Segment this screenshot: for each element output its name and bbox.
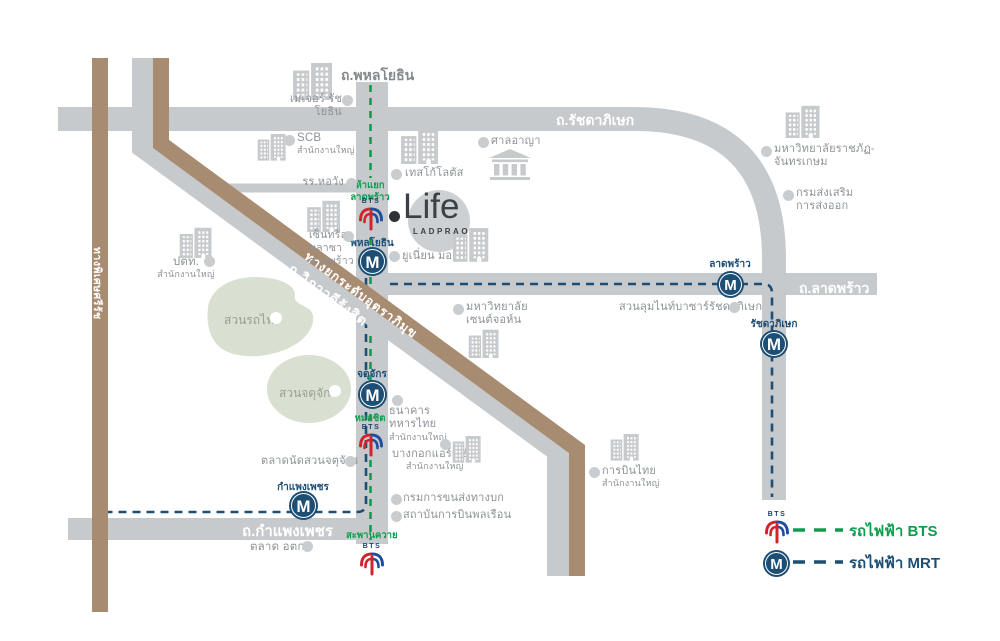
poi-scb-hq: SCB สำนักงานใหญ่: [297, 131, 355, 156]
poi-line2: สำนักงานใหญ่: [155, 269, 217, 280]
building-icon: [452, 431, 482, 467]
poi-tesco-lotus: เทสโก้โลตัส: [405, 167, 464, 180]
mrt-logo-ring: [719, 273, 742, 296]
poi-line2: ทหารไทย: [389, 418, 447, 431]
legend-bts-dash: [793, 526, 843, 534]
bts-logo-hayaek-ladprao: BTS: [356, 198, 386, 236]
poi-dot: [343, 231, 354, 242]
legend-mrt-label: รถไฟฟ้า MRT: [849, 551, 940, 575]
mrt-logo-chatuchak: M: [358, 380, 387, 409]
poi-line1: กรมส่งเสริม: [796, 187, 853, 200]
road-label-latphrao: ถ.ลาดพร้าว: [799, 278, 869, 300]
park-rotfai-dot: [270, 312, 282, 324]
poi-dot: [783, 190, 794, 201]
location-map: ถ.พหลโยธิน ถ.รัชดาภิเษก ถ.ลาดพร้าว ถ.กำแ…: [0, 0, 1000, 641]
poi-thai-airways-hq: การบินไทย สำนักงานใหญ่: [602, 465, 660, 489]
poi-otk-market: ตลาด อตก.: [250, 540, 308, 554]
bts-logo-wordmark: BTS: [356, 424, 386, 431]
poi-line1: SCB: [297, 131, 355, 145]
building-icon: [465, 329, 503, 358]
building-icon: [302, 200, 346, 232]
legend-bts-logo: BTS: [762, 511, 792, 549]
bts-logo-wordmark: BTS: [762, 511, 792, 518]
mrt-station-label-latphrao: ลาดพร้าว: [702, 257, 758, 272]
mrt-logo-ring: [765, 552, 788, 575]
poi-line1: การบินไทย: [602, 465, 660, 478]
poi-line2: จันทรเกษม: [774, 156, 875, 169]
poi-line2: สำนักงานใหญ่: [602, 478, 660, 489]
poi-line1: ธนาคาร: [389, 405, 447, 418]
mrt-logo-phahonyothin: M: [358, 247, 387, 276]
poi-line3: สำนักงานใหญ่: [389, 432, 447, 443]
building-icon: [610, 429, 640, 465]
mrt-logo-latphrao: M: [717, 271, 744, 298]
mrt-logo-ring: [360, 249, 385, 274]
poi-dot: [342, 95, 353, 106]
legend-mrt-dash: [793, 558, 843, 566]
bts-logo-mochit: BTS: [356, 424, 386, 462]
building-icon: [175, 227, 217, 258]
mrt-logo-kamphaengphet: M: [289, 491, 318, 520]
bts-logo-wordmark: BTS: [356, 198, 386, 205]
life-logo-dot: [389, 211, 400, 222]
road-label-phahonyothin: ถ.พหลโยธิน: [341, 65, 414, 87]
poi-land-transport-dept: กรมการขนส่งทางบก: [403, 492, 504, 505]
mrt-logo-ring: [762, 332, 786, 356]
bts-label-line1: ห้าแยก: [355, 180, 384, 191]
park-chatuchak-dot: [329, 385, 341, 397]
poi-dot: [345, 456, 356, 467]
poi-rajabhat-chandrakasem: มหาวิทยาลัยราชภัฏ- จันทรเกษม: [774, 143, 875, 170]
mrt-logo-ratchadaphisek: M: [760, 330, 788, 358]
life-logo-text: Life: [403, 187, 459, 227]
poi-dot: [284, 135, 295, 146]
court-building-icon: [489, 149, 531, 180]
building-icon: [400, 128, 440, 164]
poi-dot: [761, 146, 772, 157]
poi-dot: [453, 304, 464, 315]
poi-tmb-bank-hq: ธนาคาร ทหารไทย สำนักงานใหญ่: [389, 405, 447, 443]
bts-logo-symbol: [358, 550, 386, 577]
poi-line2: การส่งออก: [796, 200, 853, 213]
poi-horwang-school: รร.หอวัง: [298, 176, 344, 189]
road-label-sirat: ทางพิเศษศรีรัช: [89, 247, 106, 320]
poi-dot: [478, 137, 489, 148]
road-label-ratchadaphisek: ถ.รัชดาภิเษก: [556, 110, 634, 132]
park-label-chatuchak: สวนจตุจักร: [279, 384, 337, 403]
poi-dot: [729, 302, 740, 313]
building-icon: [452, 226, 490, 263]
building-icon: [783, 105, 823, 138]
poi-dot: [302, 541, 313, 552]
poi-dot: [346, 178, 357, 189]
mrt-logo-ring: [291, 493, 316, 518]
poi-line1: มหาวิทยาลัย: [466, 301, 528, 314]
poi-export-promotion-dept: กรมส่งเสริม การส่งออก: [796, 187, 853, 214]
poi-line2: สำนักงานใหญ่: [297, 145, 355, 156]
legend-bts-label: รถไฟฟ้า BTS: [849, 519, 938, 543]
poi-dot: [440, 439, 451, 450]
poi-dot: [391, 511, 402, 522]
bts-logo-wordmark: BTS: [357, 543, 387, 550]
poi-stjohn-university: มหาวิทยาลัย เซนต์จอห์น: [466, 301, 528, 328]
poi-line3: ลาดพร้าว: [309, 255, 354, 268]
bts-logo-saphankhwai: BTS: [357, 543, 387, 581]
poi-night-bazaar: สวนลุมไนท์บาซาร์รัชดาภิเษก: [619, 301, 762, 314]
bts-station-label-saphankhwai: สะพานควาย: [346, 530, 396, 542]
building-icon: [257, 130, 287, 164]
poi-civil-aviation-institute: สถาบันการบินพลเรือน: [403, 509, 511, 522]
bts-logo-symbol: [357, 205, 385, 232]
bts-logo-symbol: [763, 518, 791, 545]
legend-mrt-logo: M: [763, 550, 790, 577]
poi-dot: [391, 494, 402, 505]
mrt-logo-ring: [360, 382, 385, 407]
poi-line2: เซนต์จอห์น: [466, 314, 528, 327]
poi-dot: [391, 169, 402, 180]
poi-line2: พลาซา: [309, 242, 354, 255]
poi-criminal-court: ศาลอาญา: [491, 135, 541, 148]
poi-major-ratchayothin: เมเจอร์ รัชโยธิน: [268, 93, 342, 120]
poi-dot: [389, 251, 400, 262]
bts-logo-symbol: [357, 431, 385, 458]
poi-dot: [589, 467, 600, 478]
poi-dot: [204, 256, 215, 267]
poi-line1: มหาวิทยาลัยราชภัฏ-: [774, 143, 875, 156]
park-label-rotfai: สวนรถไฟ: [224, 311, 275, 330]
